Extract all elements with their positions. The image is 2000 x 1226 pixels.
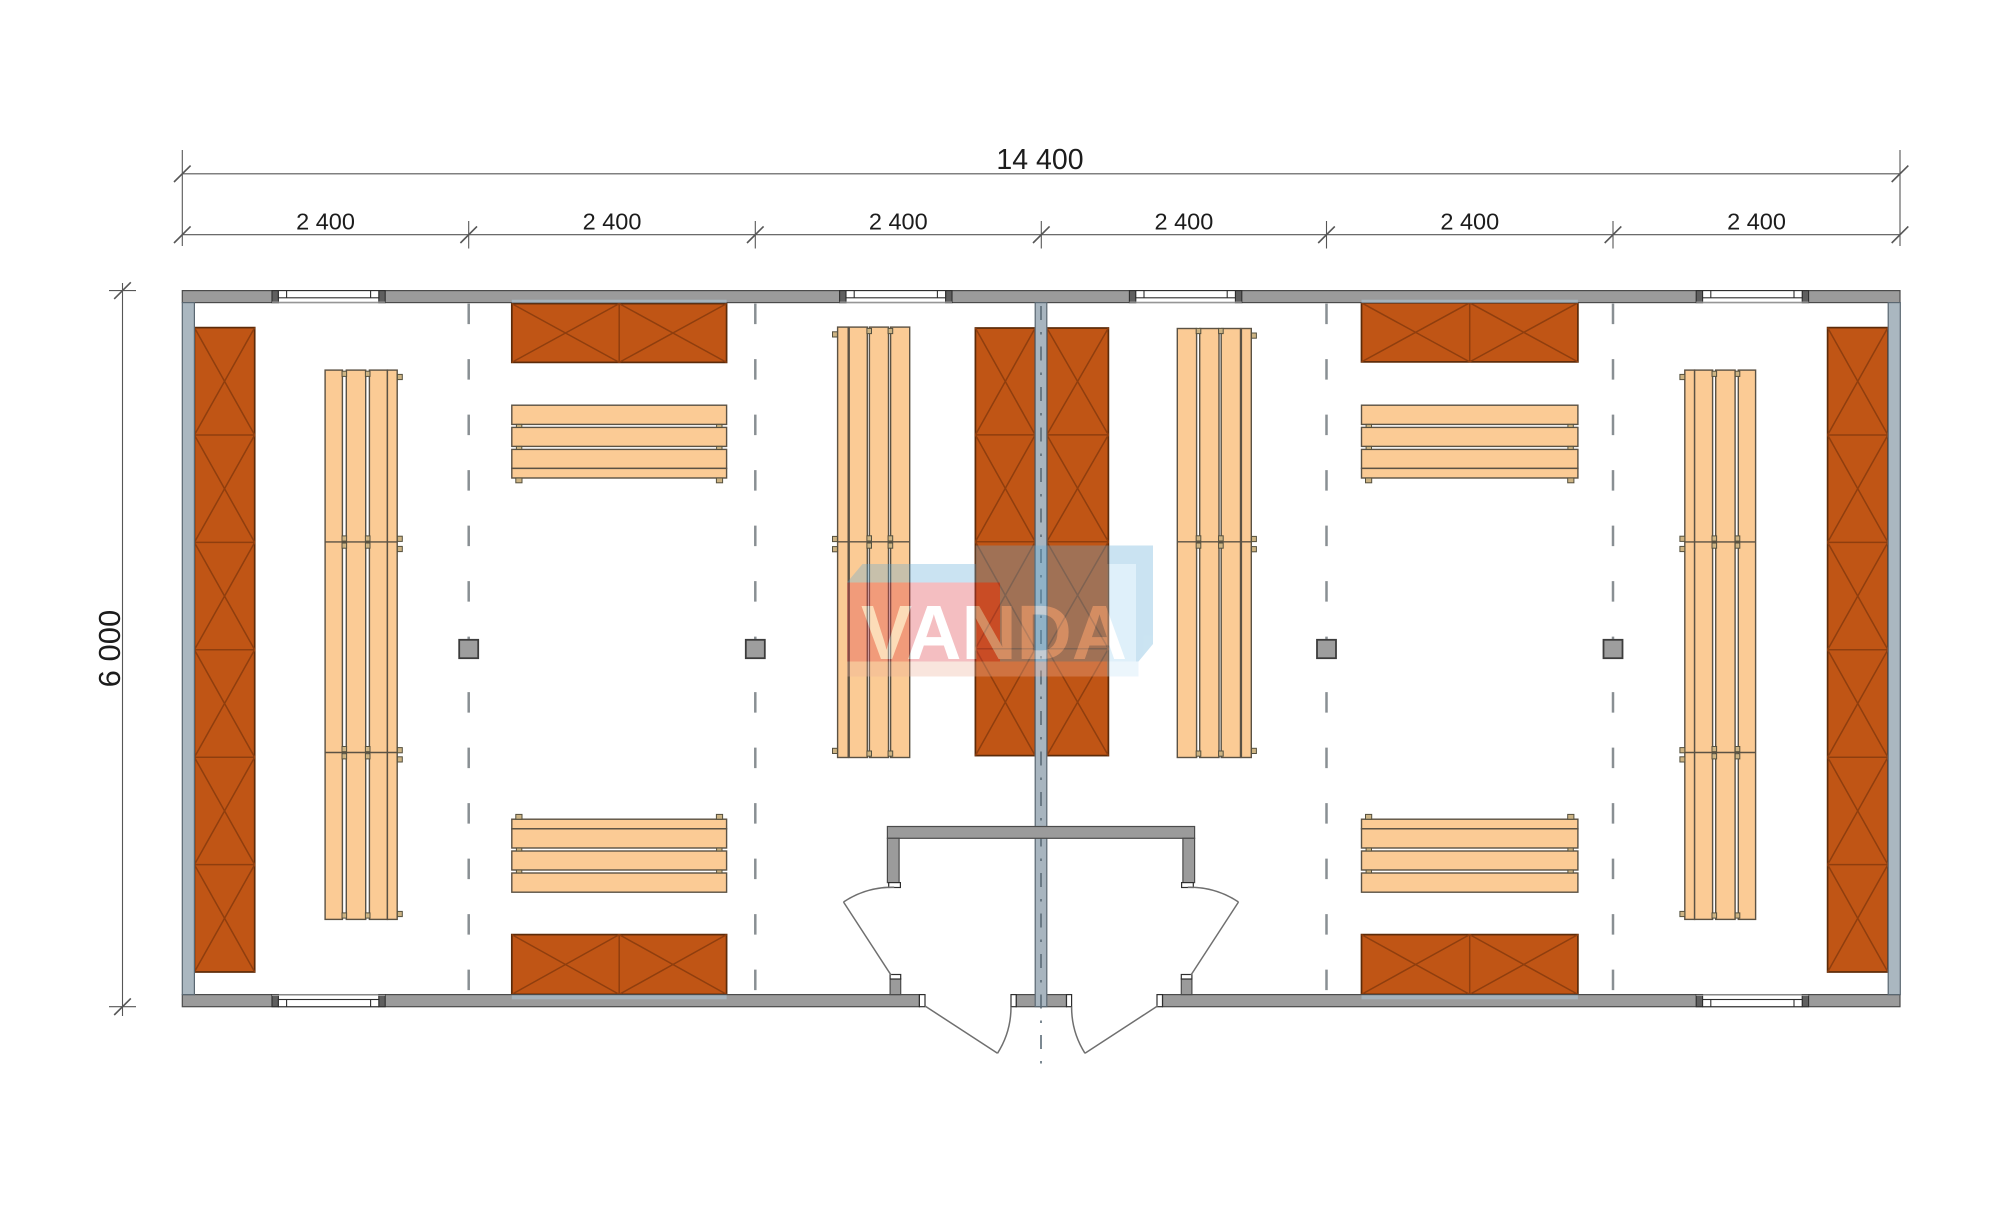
svg-text:2 400: 2 400 — [1154, 209, 1213, 235]
svg-text:2 400: 2 400 — [1440, 209, 1499, 235]
svg-text:2 400: 2 400 — [1727, 209, 1786, 235]
svg-text:14 400: 14 400 — [996, 144, 1083, 176]
svg-text:2 400: 2 400 — [869, 209, 928, 235]
svg-text:2 400: 2 400 — [583, 209, 642, 235]
svg-text:2 400: 2 400 — [296, 209, 355, 235]
svg-text:6 000: 6 000 — [92, 610, 127, 688]
svg-text:VANDA: VANDA — [861, 590, 1127, 676]
